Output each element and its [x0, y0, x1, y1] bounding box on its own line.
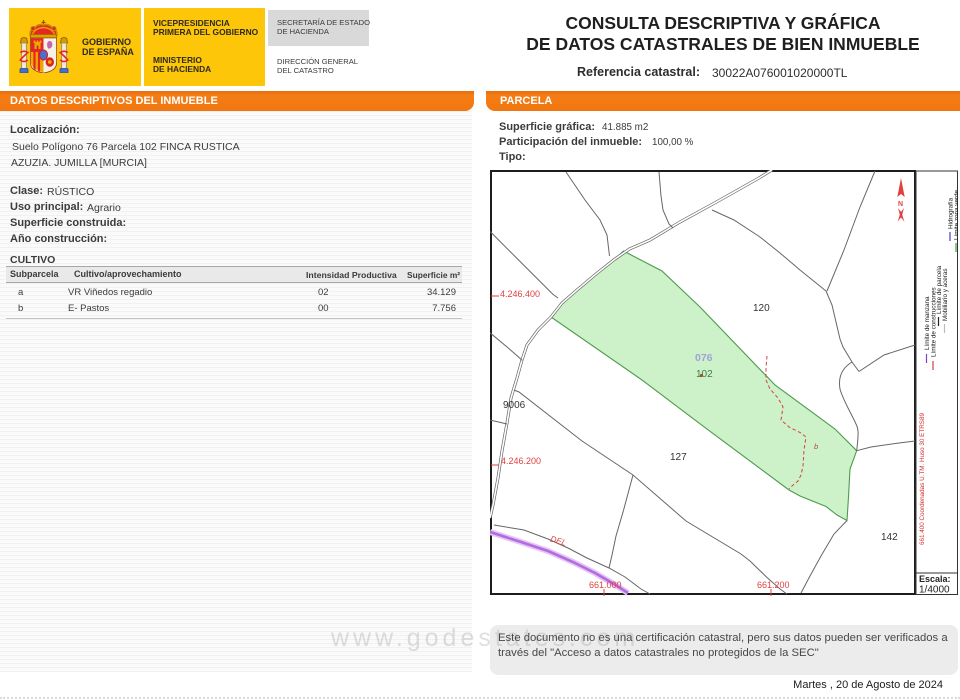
svg-text:142: 142: [881, 532, 898, 543]
svg-text:120: 120: [753, 303, 770, 314]
svg-text:b: b: [814, 442, 818, 451]
svg-text:661.200: 661.200: [757, 580, 790, 590]
svg-text:661.000: 661.000: [589, 580, 622, 590]
svg-text:1/4000: 1/4000: [919, 585, 950, 596]
svg-text:Límite zona verde: Límite zona verde: [954, 189, 959, 240]
svg-text:127: 127: [670, 452, 687, 463]
svg-text:Límite de construcciones: Límite de construcciones: [931, 287, 938, 357]
svg-text:Escala:: Escala:: [919, 574, 951, 584]
svg-text:N: N: [898, 201, 903, 208]
svg-text:4.246.400: 4.246.400: [500, 289, 540, 299]
svg-text:9006: 9006: [503, 400, 526, 411]
svg-text:Mobiliario y aceras: Mobiliario y aceras: [942, 269, 949, 322]
svg-text:102: 102: [696, 369, 713, 380]
svg-text:4.246.200: 4.246.200: [501, 456, 541, 466]
svg-text:661.400 Coordenadas U.TM. Huso: 661.400 Coordenadas U.TM. Huso 30 ETRS89: [919, 413, 926, 545]
svg-text:076: 076: [695, 352, 713, 364]
